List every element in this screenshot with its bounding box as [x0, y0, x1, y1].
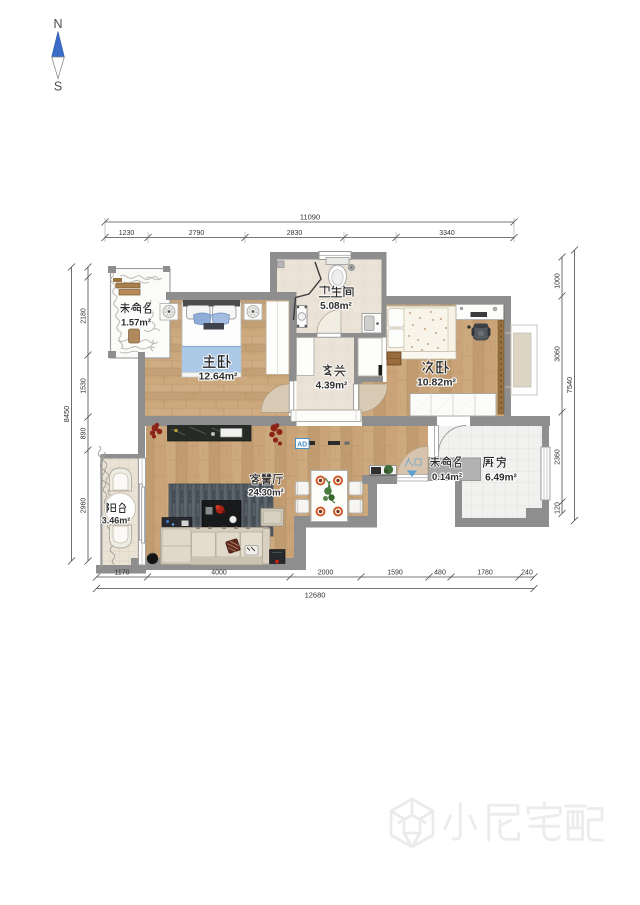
svg-text:11090: 11090	[300, 213, 320, 222]
svg-text:24.30m²: 24.30m²	[248, 488, 283, 499]
svg-text:120: 120	[555, 502, 562, 514]
svg-text:5.08m²: 5.08m²	[320, 301, 352, 312]
svg-text:12.64m²: 12.64m²	[198, 371, 238, 383]
svg-text:1530: 1530	[81, 378, 88, 394]
svg-text:AD: AD	[297, 441, 307, 448]
svg-text:240: 240	[521, 570, 533, 577]
svg-text:2360: 2360	[555, 449, 562, 465]
svg-text:2000: 2000	[318, 570, 334, 577]
svg-text:1780: 1780	[477, 570, 493, 577]
svg-text:2180: 2180	[81, 308, 88, 324]
svg-text:3060: 3060	[555, 346, 562, 362]
svg-text:3.46m²: 3.46m²	[102, 516, 131, 526]
svg-text:6.49m²: 6.49m²	[485, 473, 517, 484]
svg-text:2960: 2960	[81, 498, 88, 514]
svg-text:1590: 1590	[387, 570, 403, 577]
svg-text:10.82m²: 10.82m²	[417, 377, 457, 389]
svg-text:2830: 2830	[287, 230, 303, 237]
svg-text:1000: 1000	[555, 273, 562, 289]
svg-text:S: S	[54, 80, 62, 94]
svg-text:4.39m²: 4.39m²	[316, 381, 348, 392]
svg-text:480: 480	[434, 570, 446, 577]
svg-text:4000: 4000	[211, 570, 227, 577]
svg-text:0.14m²: 0.14m²	[432, 472, 462, 483]
svg-text:1230: 1230	[119, 230, 135, 237]
svg-text:12680: 12680	[305, 591, 326, 600]
svg-text:N: N	[53, 17, 62, 31]
svg-text:3340: 3340	[439, 230, 455, 237]
svg-text:7540: 7540	[565, 377, 574, 394]
svg-text:890: 890	[81, 428, 88, 440]
svg-text:1170: 1170	[114, 570, 129, 577]
svg-text:1.57m²: 1.57m²	[121, 318, 151, 329]
svg-text:8450: 8450	[62, 406, 71, 423]
svg-text:2790: 2790	[189, 230, 205, 237]
